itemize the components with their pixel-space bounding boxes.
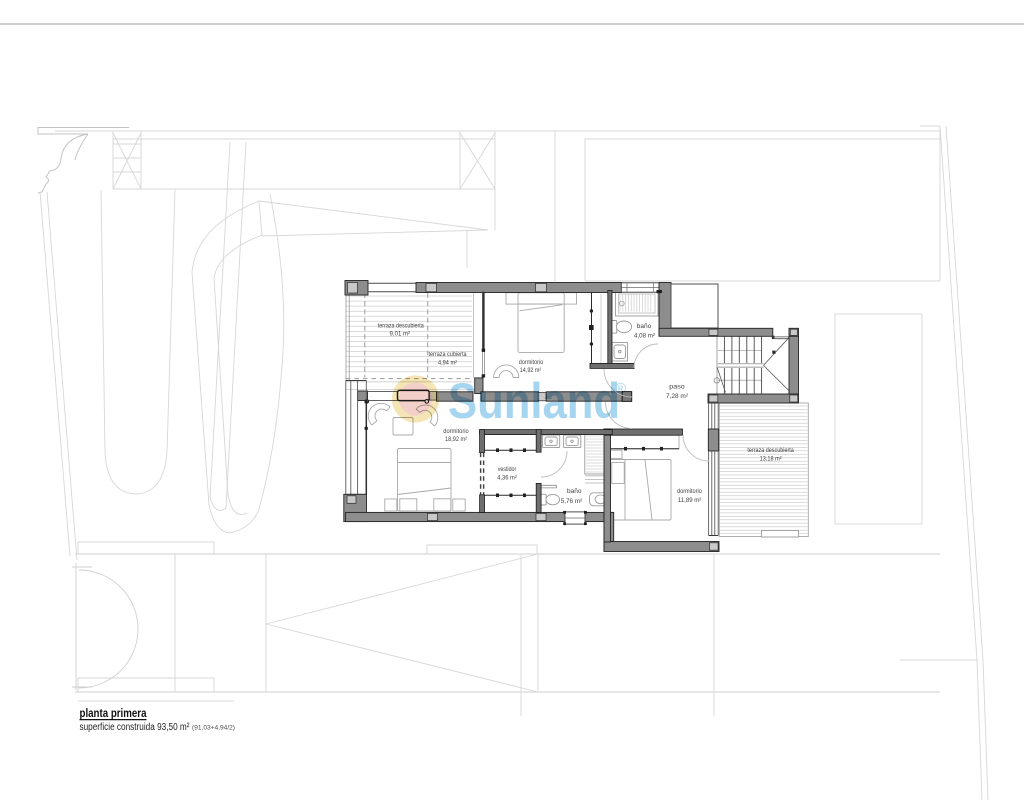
svg-text:13,18 m²: 13,18 m² — [760, 456, 782, 463]
svg-text:4,94 m²: 4,94 m² — [438, 360, 457, 367]
svg-text:4,36 m²: 4,36 m² — [497, 475, 517, 482]
svg-text:paso: paso — [669, 384, 685, 391]
svg-text:Sunland: Sunland — [448, 373, 620, 429]
svg-text:planta primera: planta primera — [80, 706, 147, 720]
svg-text:dormitorio: dormitorio — [519, 359, 544, 366]
svg-text:dormitorio: dormitorio — [677, 488, 702, 495]
svg-text:18,92 m²: 18,92 m² — [445, 436, 467, 443]
svg-text:11,89 m²: 11,89 m² — [678, 497, 701, 504]
svg-text:baño: baño — [637, 323, 652, 330]
svg-text:9,01 m²: 9,01 m² — [390, 331, 411, 338]
svg-text:(91,03+4,94/2): (91,03+4,94/2) — [192, 724, 235, 731]
svg-text:terraza cubierta: terraza cubierta — [429, 351, 467, 358]
svg-text:5,76 m²: 5,76 m² — [561, 498, 583, 505]
svg-text:superficie construida 93,50 m²: superficie construida 93,50 m² — [80, 722, 191, 733]
svg-text:vestidor: vestidor — [498, 466, 517, 473]
svg-text:baño: baño — [567, 488, 582, 495]
svg-text:®: ® — [615, 381, 626, 398]
svg-text:terraza descubierta: terraza descubierta — [378, 322, 424, 329]
svg-text:7,28 m²: 7,28 m² — [666, 393, 688, 400]
svg-text:terraza descubierta: terraza descubierta — [747, 447, 794, 454]
svg-text:4,08 m²: 4,08 m² — [634, 333, 655, 340]
